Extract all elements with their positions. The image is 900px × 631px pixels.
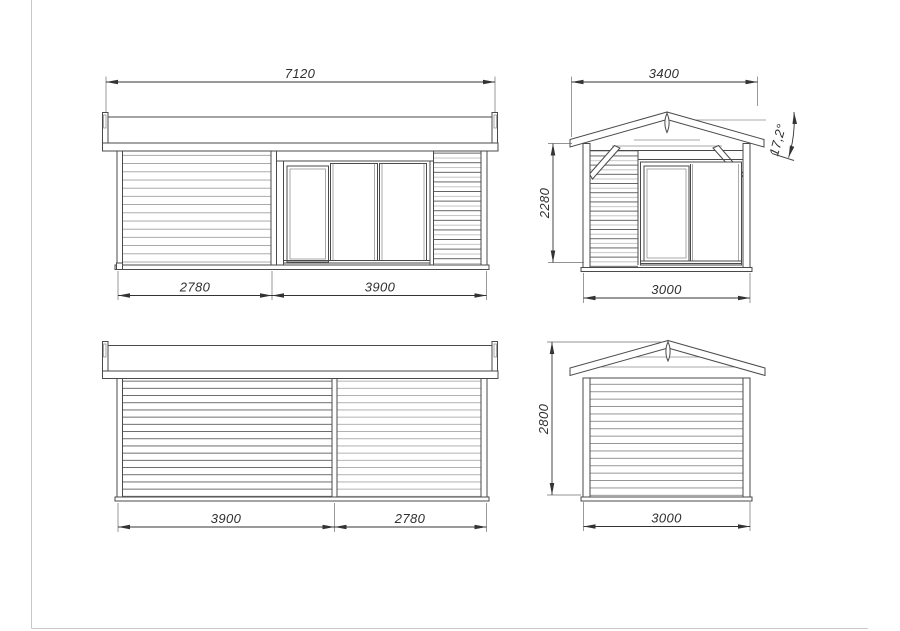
ridge-ornament — [665, 114, 669, 133]
dim-side-solid-base-width: 3000 — [651, 511, 682, 526]
rear-base — [115, 497, 489, 501]
rear-elevation-view: 3900 2780 — [103, 342, 499, 533]
front-total-width-dimension: 7120 — [106, 66, 495, 112]
dim-roof-angle: 17,2° — [766, 122, 789, 157]
elevation-drawing-canvas: 7120 — [0, 0, 900, 631]
side-solid-base — [581, 497, 752, 501]
front-wall-divider — [271, 151, 277, 265]
side-solid-roof — [570, 341, 765, 376]
front-siding-left — [123, 152, 271, 265]
front-elevation-view: 7120 — [103, 66, 499, 300]
side-door-roof — [570, 112, 764, 147]
rear-wall-divider — [332, 379, 337, 498]
dim-rear-section-right: 2780 — [394, 511, 426, 526]
door-panel-middle — [331, 164, 378, 261]
dim-front-section-right: 3900 — [365, 280, 396, 295]
front-siding-right — [434, 152, 482, 266]
dim-side-wall-height: 2280 — [537, 187, 552, 219]
front-sliding-door — [277, 151, 434, 265]
side-solid-base-dimension: 3000 — [584, 502, 751, 531]
corner-post-left — [583, 144, 590, 268]
corner-post-right — [743, 378, 750, 497]
side-elevation-solid-view: 2800 3000 — [536, 341, 765, 532]
front-roof — [103, 113, 499, 152]
dim-side-total-height: 2800 — [536, 403, 551, 435]
ridge-ornament — [666, 342, 670, 361]
side-wall-height-dimension: 2280 — [537, 144, 584, 263]
side-door-base-dimension: 3000 — [584, 273, 751, 303]
rear-siding-left — [123, 379, 332, 497]
door-panel-left — [287, 166, 329, 262]
corner-post-left — [583, 378, 590, 497]
side-elevation-door-view: 3400 17,2° — [537, 66, 794, 303]
side-door-panel-left — [644, 166, 689, 261]
side-solid-wall — [583, 378, 750, 497]
dim-front-section-left: 2780 — [179, 280, 211, 295]
front-section-dimensions: 2780 3900 — [118, 271, 487, 300]
rear-wall — [117, 379, 487, 498]
rear-roof — [103, 342, 499, 379]
side-door-base — [581, 268, 752, 272]
rear-siding-right — [338, 379, 482, 497]
dim-side-door-base-width: 3000 — [651, 282, 682, 297]
rear-section-dimensions: 3900 2780 — [118, 503, 487, 532]
dim-side-roof-width: 3400 — [649, 66, 680, 81]
side-solid-siding — [590, 379, 743, 497]
dim-rear-section-left: 3900 — [211, 511, 242, 526]
technical-drawing-sheet: 7120 — [0, 0, 900, 631]
side-sliding-door — [638, 160, 743, 266]
page-border — [32, 0, 869, 629]
dim-front-total-width: 7120 — [285, 66, 316, 81]
corner-post-right — [743, 144, 750, 268]
door-panel-right — [380, 164, 427, 261]
